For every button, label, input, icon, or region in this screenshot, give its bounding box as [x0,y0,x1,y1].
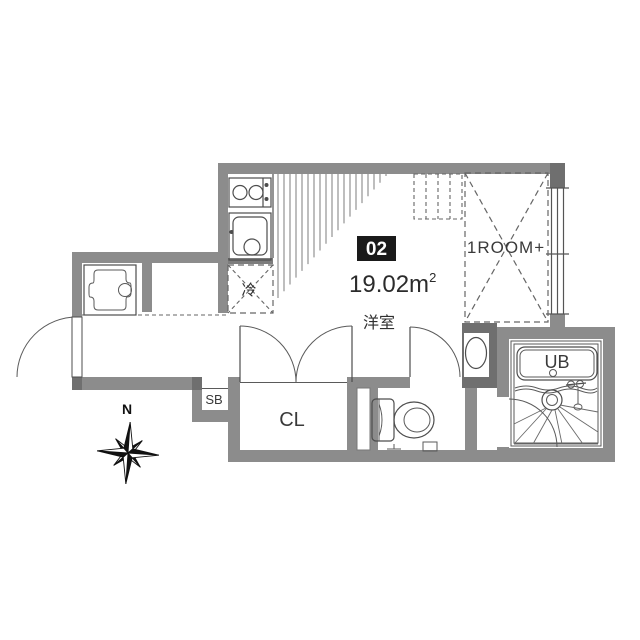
kitchen-sink-icon [229,213,271,260]
closet-doors [240,326,352,383]
shoe-box-label: SB [205,392,222,407]
toilet-cabinet [423,442,437,451]
washbasin-icon [466,338,487,369]
loft-area: 1ROOM+ [414,173,548,322]
area-label: 19.02m2 [349,270,436,298]
toilet-room [372,327,460,451]
refrigerator-space: 冷 [228,265,273,313]
window-right [546,188,569,314]
toilet-door [410,327,460,377]
compass-north-label: N [122,401,132,417]
unit-bath-label: UB [544,352,569,372]
compass-rose-icon: N [95,401,161,486]
pipe-space [357,388,370,450]
entrance-door [17,317,82,377]
loft-label: 1ROOM+ [467,238,545,257]
floor-plan: 冷 1ROOM+ [0,0,640,640]
corner-block-top-right [550,163,565,188]
washing-machine-icon [84,265,136,315]
entrance-area [17,265,228,377]
kitchen: 冷 [228,174,273,313]
main-room-label: 洋室 [363,314,395,332]
paper-holder-icon [387,444,401,449]
toilet-icon [372,399,434,441]
loft-ladder-icon [414,174,462,219]
closet-label: CL [279,409,305,431]
stove-icon [229,178,271,207]
unit-number: 02 [366,239,387,260]
floor-plan-page: 冷 1ROOM+ [0,0,640,640]
refrigerator-label: 冷 [241,282,256,299]
